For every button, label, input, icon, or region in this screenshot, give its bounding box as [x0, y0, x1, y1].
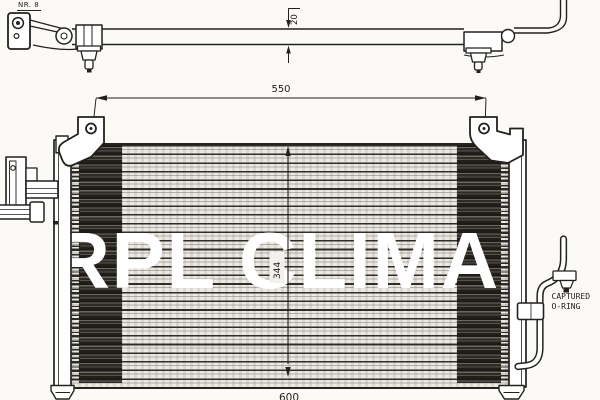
captured-oring-note-line1: CAPTURED — [552, 292, 591, 303]
dimension-span-lines — [93, 95, 486, 126]
front-view — [0, 117, 526, 399]
oring-fitting — [553, 271, 576, 281]
side-bracket-arm — [26, 181, 58, 198]
mounting-bracket-right — [470, 117, 523, 163]
drawing-linework — [0, 0, 600, 400]
inlet-pipe-stub — [0, 205, 34, 219]
pipe-block-fitting — [518, 303, 544, 320]
dimension-core-height: 344 — [273, 262, 283, 279]
left-tank — [54, 140, 71, 387]
dimension-overall-width: 600 — [268, 392, 310, 400]
right-mounting-bolt — [471, 53, 487, 62]
captured-oring-note: CAPTURED O-RING — [552, 292, 591, 313]
captured-oring-note-line2: O-RING — [552, 302, 591, 313]
dimension-depth: 20 — [290, 14, 300, 25]
right-tank — [509, 140, 526, 387]
mounting-bracket-left — [59, 117, 104, 166]
part-number-label: NR. 8 — [17, 1, 41, 11]
dimension-mounting-span: 550 — [261, 84, 301, 95]
top-pipe-bend — [514, 0, 561, 28]
left-mounting-bolt — [81, 51, 97, 60]
condenser-technical-drawing: RPL CLIMA — [0, 0, 600, 400]
top-view-assembly — [8, 0, 567, 73]
